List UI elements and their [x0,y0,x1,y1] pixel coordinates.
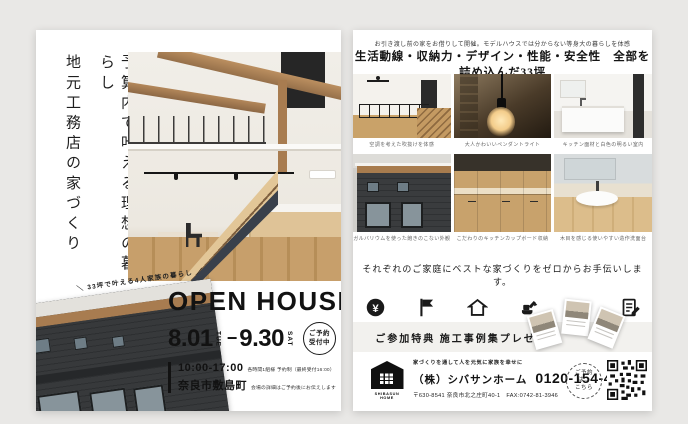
handle [530,201,538,203]
washbasin-photo [554,154,652,232]
open-hours-note: 各時間1組様 予約制（最終受付16:00） [247,366,334,373]
logo-window-grid [380,373,394,384]
window [73,337,88,351]
kitchen-island [562,106,624,132]
booklet [587,306,625,349]
loft-floor-slab [128,144,341,151]
window [397,182,409,192]
dark-exterior-photo [353,154,451,232]
photo-card: こだわりのキッチンカップボード収納 [454,154,552,246]
photo-card: キッチン面材と白色の明るい室内 [554,74,652,152]
company-logo: SHIBASUN HOME [367,361,407,400]
booklet [561,299,592,337]
loft-railing [128,116,266,144]
glass-door [365,202,391,228]
logo-text: SHIBASUN HOME [367,392,407,400]
light-cord [501,74,504,100]
photo-card: 大人かわいいペンダントライト [454,74,552,152]
company-info: 家づくりを通して人を元気に家族を幸せに （株）シバサンホーム 0120-154-… [413,359,563,399]
photo-card: 空調を考えた吹抜けを体感 [353,74,451,152]
flyer-page-left: 予算内で叶える理想の暮らし 地元工務店の家づくり ＼ 33坪で叶える4人家族の暮… [36,30,341,411]
company-tagline: 家づくりを通して人を元気に家族を幸せに [413,359,563,366]
headline-line-2: 地元工務店の家づくり [62,54,83,292]
photo-caption: 大人かわいいペンダントライト [454,138,552,152]
glass-door [401,202,423,228]
photo-caption: 木目を感じる使いやすい造作洗面台 [554,232,652,246]
date-end-weekday: SAT [286,331,293,347]
company-footer: SHIBASUN HOME 家づくりを通して人を元気に家族を幸せに （株）シバサ… [353,352,652,411]
booklet [527,309,563,350]
light-bulb [487,107,515,137]
qr-code [607,360,647,400]
date-start: 8.01 [168,325,213,353]
open-hours: 10:00-17:00 [178,362,243,374]
open-house-title: OPEN HOUSE [168,286,336,317]
window [36,338,51,354]
date-separator: − [227,328,238,349]
reservation-here-badge: ご予約 は→ こちら [566,363,602,399]
yen-coin-icon: ¥ [365,297,386,318]
venue-note: 会場の詳細はご予約後にお伝えします [251,384,336,391]
window [367,182,379,192]
handle [502,201,510,203]
photo-card: ガルバリウムを使った飽きのこない外観 [353,154,451,246]
cupboard-photo [454,154,552,232]
support-heading: それぞれのご家庭にベストな家づくりをゼロからお手伝いします。 [353,262,652,288]
house-logo-icon [371,361,404,389]
hero-interior-photo [128,52,341,281]
pendant-light-photo [454,74,552,138]
dark-pillar [633,74,644,138]
stairs [417,108,451,138]
photo-caption: こだわりのキッチンカップボード収納 [454,232,552,246]
flag-icon [416,297,437,318]
venue: 奈良市敷島町 [178,377,247,393]
glass-door [89,388,131,411]
wood-eave [357,166,451,173]
company-address: 〒630-8541 奈良市北之庄町40-1 FAX:0742-81-3946 [413,391,563,399]
glass-door [133,384,169,411]
track-light [144,172,294,174]
date-start-weekday: TUE [215,331,222,347]
handle [468,201,476,203]
company-name: （株）シバサンホーム [413,372,527,387]
open-house-block: OPEN HOUSE 8.01 TUE − 9.30 SAT ご予約 受付中 1… [168,286,336,396]
faucet [580,98,582,106]
photo-caption: キッチン面材と白色の明るい室内 [554,138,652,152]
window [112,335,125,348]
vertical-headline: 予算内で叶える理想の暮らし 地元工務店の家づくり [62,54,138,292]
flyer-canvas: 予算内で叶える理想の暮らし 地元工務店の家づくり ＼ 33坪で叶える4人家族の暮… [0,0,688,424]
photo-caption: ガルバリウムを使った飽きのこない外観 [353,232,451,246]
stair-background [460,74,478,138]
window [560,80,586,98]
flyer-page-right: お引き渡し前の家をお借りして開催。モデルハウスでは分からない等身大の暮らしを体感… [353,30,652,411]
photo-caption: 空調を考えた吹抜けを体感 [353,138,451,152]
atrium-photo [353,74,451,138]
open-house-details: 10:00-17:00 各時間1組様 予約制（最終受付16:00） 奈良市敷島町… [168,362,336,393]
wood-post [278,80,287,172]
photo-card: 木目を感じる使いやすい造作洗面台 [554,154,652,246]
intro-subtitle: お引き渡し前の家をお借りして開催。モデルハウスでは分からない等身大の暮らしを体感 [353,39,652,48]
faucet [596,181,599,191]
photo-grid: 空調を考えた吹抜けを体感 大人かわいいペンダントライト キッチン [353,74,652,246]
air-conditioner [309,170,336,179]
case-study-booklets [523,298,633,358]
reservation-open-badge: ご予約 受付中 [303,322,336,355]
white-kitchen-photo [554,74,652,138]
mirror [564,158,616,180]
date-end: 9.30 [239,325,284,353]
svg-text:¥: ¥ [372,303,379,315]
ceiling-fan-icon [367,80,389,82]
wood-beam [128,80,266,113]
open-house-dates: 8.01 TUE − 9.30 SAT ご予約 受付中 [168,322,336,355]
house-icon [467,297,488,318]
